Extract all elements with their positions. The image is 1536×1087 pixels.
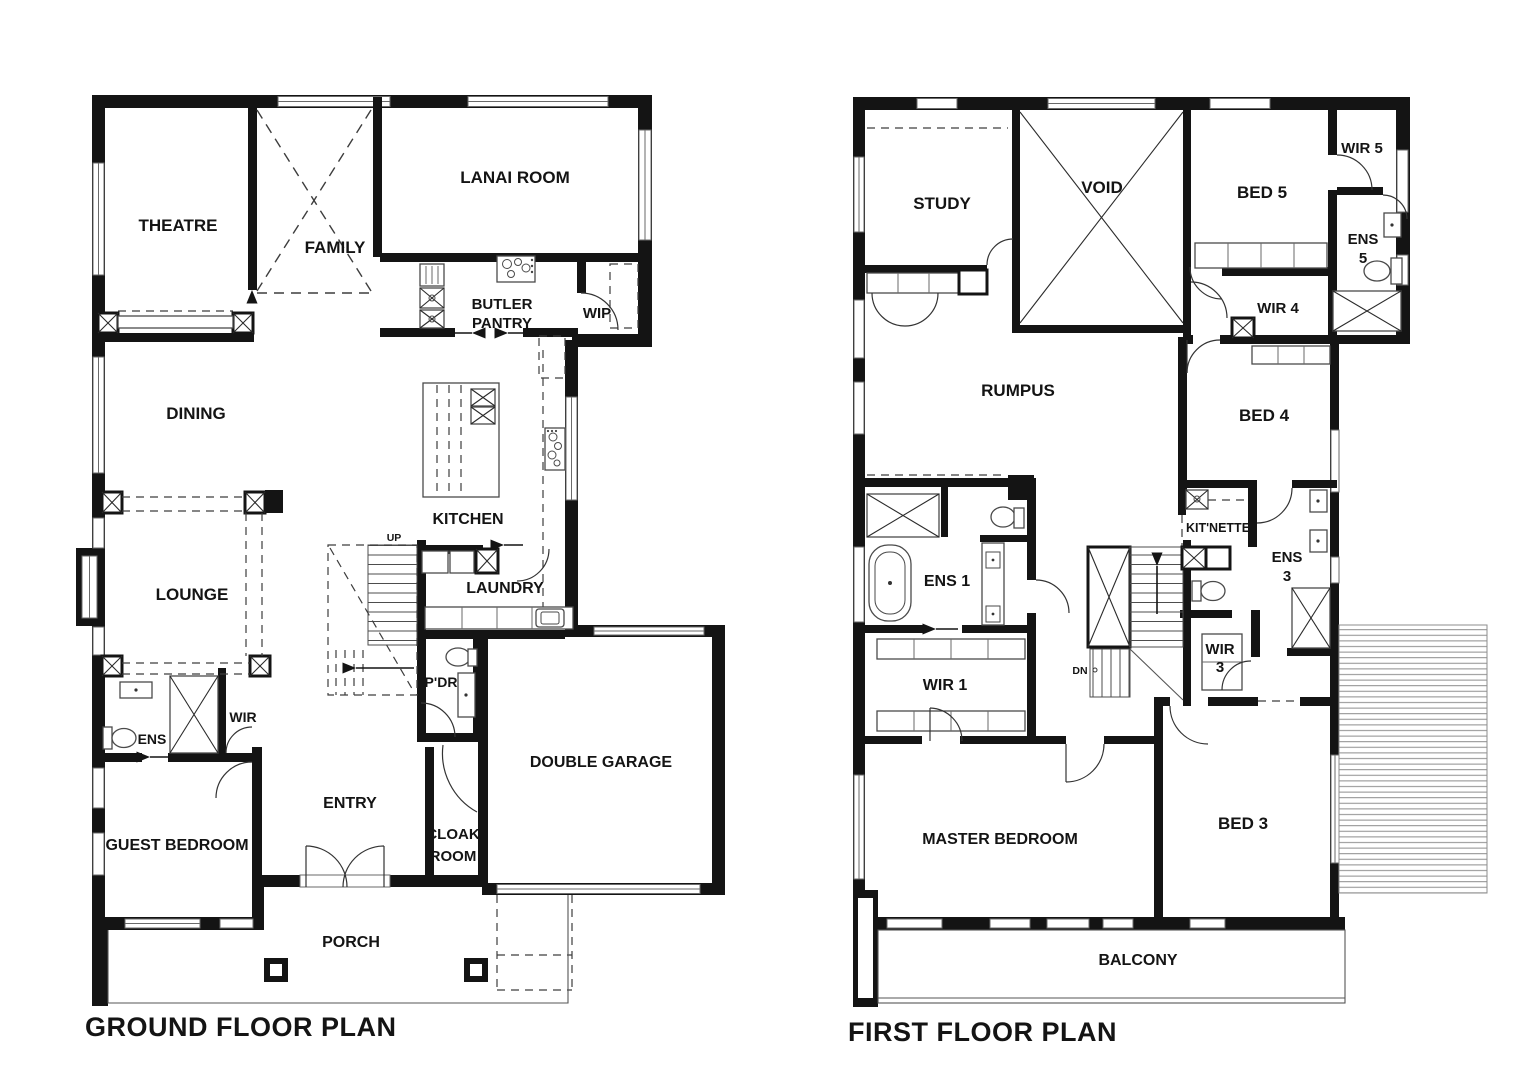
- ens3-toilet-icon: [1192, 581, 1225, 601]
- study-door: [987, 239, 1013, 265]
- room-label-porch: PORCH: [322, 934, 380, 951]
- laundry-door: [517, 549, 549, 581]
- ens3-door: [1257, 488, 1292, 523]
- ground-floor-plan: THEATRE FAMILY LANAI ROOM BUTLER PANTRY …: [76, 95, 725, 1042]
- linen-cupboards: [1182, 547, 1230, 569]
- kitchen-island: [423, 383, 499, 497]
- ens-vanity-icon: [120, 682, 152, 698]
- room-label-ens1: ENS 1: [924, 573, 970, 590]
- room-label-wir5: WIR 5: [1341, 140, 1383, 157]
- first-interior-walls: [865, 110, 1383, 919]
- theatre-cabinet: [118, 316, 233, 328]
- wir-door: [226, 727, 252, 753]
- room-label-kitchen: KITCHEN: [432, 511, 503, 528]
- bed5-robe: [1195, 243, 1327, 268]
- room-label-ens3-2: 3: [1283, 568, 1291, 585]
- room-label-wir4: WIR 4: [1257, 300, 1299, 317]
- porch-posts: [264, 958, 488, 982]
- master-door: [1066, 744, 1104, 782]
- first-dashed-features: [867, 128, 1300, 701]
- rumpus-double-door: [872, 293, 938, 326]
- room-label-master-bedroom: MASTER BEDROOM: [922, 831, 1078, 848]
- ens3-vanities: [1310, 490, 1327, 552]
- pier-icon: [98, 313, 118, 333]
- bed4-robe: [1252, 346, 1330, 364]
- ens1-vanity: [982, 543, 1004, 625]
- wir4-shelf-icon: [1232, 318, 1254, 338]
- first-stairs: [1088, 547, 1183, 700]
- wir5-door: [1337, 155, 1372, 190]
- room-label-wir3-2: 3: [1216, 659, 1224, 676]
- first-deck: [1339, 625, 1487, 893]
- driveway-outline: [497, 895, 572, 990]
- laundry-appliances: [422, 549, 498, 573]
- ground-fixtures: [103, 256, 573, 982]
- powder-door: [421, 703, 455, 737]
- pier-icon: [102, 492, 122, 513]
- pier-icon: [233, 313, 253, 333]
- kitnette-sink-icon: [1186, 490, 1208, 509]
- cooktop-icon: [497, 256, 535, 282]
- first-void-cross: [1020, 112, 1183, 323]
- room-label-ens: ENS: [138, 731, 167, 747]
- stair-label-up: UP: [387, 532, 402, 544]
- room-label-double-garage: DOUBLE GARAGE: [530, 754, 673, 771]
- ens1-door: [1036, 580, 1069, 613]
- room-label-butler-2: PANTRY: [472, 315, 532, 332]
- room-label-theatre: THEATRE: [138, 216, 217, 235]
- ens1-shower-icon: [867, 494, 939, 537]
- room-label-guest-bedroom: GUEST BEDROOM: [105, 837, 248, 854]
- room-label-rumpus: RUMPUS: [981, 381, 1055, 400]
- room-label-family: FAMILY: [305, 238, 366, 257]
- room-label-wir: WIR: [229, 709, 256, 725]
- pier-icon: [250, 656, 270, 676]
- room-label-ens3-1: ENS: [1272, 549, 1303, 566]
- ground-stairs: [328, 545, 417, 695]
- room-label-lounge: LOUNGE: [156, 585, 229, 604]
- room-label-powder: P'DR: [425, 674, 458, 690]
- ens-toilet-icon: [103, 727, 136, 749]
- powder-toilet-icon: [446, 648, 477, 666]
- room-label-void: VOID: [1081, 178, 1123, 197]
- room-label-bed4: BED 4: [1239, 406, 1290, 425]
- first-floor-plan: STUDY VOID BED 5 WIR 5 ENS 5 WIR 4 RUMPU…: [848, 97, 1487, 1047]
- room-label-dining: DINING: [166, 404, 226, 423]
- room-label-lanai: LANAI ROOM: [460, 168, 570, 187]
- deck-boards: [1339, 625, 1487, 893]
- stair-label-dn: DN: [1072, 665, 1087, 677]
- powder-basin-icon: [458, 673, 475, 717]
- bed4-door: [1187, 340, 1220, 373]
- room-label-ens5-2: 5: [1359, 250, 1367, 267]
- cloak-door: [442, 745, 477, 812]
- room-label-wir1: WIR 1: [923, 677, 968, 694]
- ens-shower-icon: [170, 676, 218, 753]
- ground-floor-title: GROUND FLOOR PLAN: [85, 1012, 397, 1042]
- ens5-shower-icon: [1333, 291, 1401, 331]
- ens5-vanity-icon: [1384, 213, 1401, 237]
- floor-plan-page: THEATRE FAMILY LANAI ROOM BUTLER PANTRY …: [0, 0, 1536, 1087]
- guest-bedroom-door: [216, 762, 252, 798]
- room-label-balcony: BALCONY: [1098, 952, 1177, 969]
- ens1-toilet-icon: [991, 507, 1024, 528]
- butler-pantry-tall-unit: [420, 264, 444, 328]
- study-cabinet: [867, 270, 987, 294]
- stair-treads-up: [368, 545, 417, 645]
- ens5-toilet-icon: [1364, 258, 1402, 284]
- kitchen-cooktop-icon: [545, 428, 565, 470]
- first-floor-title: FIRST FLOOR PLAN: [848, 1017, 1117, 1047]
- room-label-wir3-1: WIR: [1205, 641, 1234, 658]
- bed3-door: [1170, 706, 1208, 744]
- room-label-wip: WIP: [583, 305, 611, 322]
- laundry-bench: [425, 607, 573, 629]
- wip-shelving: [610, 264, 638, 328]
- wir4-door: [1191, 282, 1227, 318]
- room-label-cloak-1: CLOAK: [426, 826, 479, 843]
- ground-column-piers: [98, 313, 270, 676]
- room-label-laundry: LAUNDRY: [466, 580, 544, 597]
- ens1-bath-icon: [869, 545, 911, 621]
- pier-icon: [102, 656, 122, 676]
- pier-icon: [245, 492, 265, 513]
- room-label-bed3: BED 3: [1218, 814, 1268, 833]
- ens3-shower-icon: [1292, 588, 1330, 648]
- floor-plan-drawing: THEATRE FAMILY LANAI ROOM BUTLER PANTRY …: [0, 0, 1536, 1087]
- room-label-kitnette: KIT'NETTE: [1186, 521, 1250, 535]
- room-label-study: STUDY: [913, 194, 971, 213]
- room-label-ens5-1: ENS: [1348, 231, 1379, 248]
- bed5-door: [1190, 267, 1222, 299]
- room-label-butler-1: BUTLER: [472, 296, 533, 313]
- room-label-cloak-2: ROOM: [430, 848, 477, 865]
- room-label-entry: ENTRY: [323, 795, 377, 812]
- room-label-bed5: BED 5: [1237, 183, 1287, 202]
